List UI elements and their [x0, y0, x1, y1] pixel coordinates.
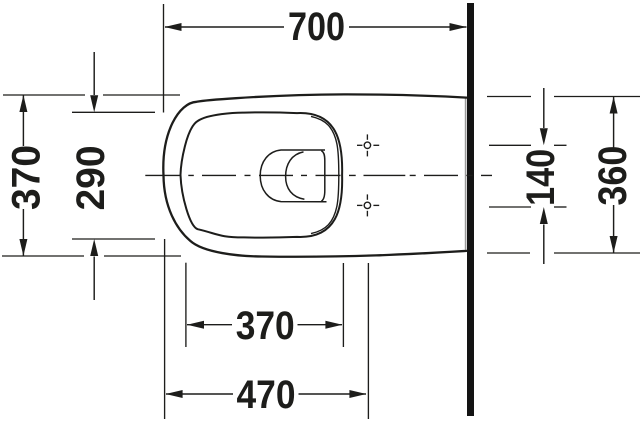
svg-text:370: 370 — [236, 304, 295, 348]
svg-text:700: 700 — [288, 5, 345, 49]
svg-text:470: 470 — [237, 373, 296, 417]
svg-text:140: 140 — [519, 149, 563, 206]
svg-text:360: 360 — [591, 146, 635, 206]
svg-text:290: 290 — [69, 146, 113, 211]
svg-text:370: 370 — [4, 145, 48, 210]
